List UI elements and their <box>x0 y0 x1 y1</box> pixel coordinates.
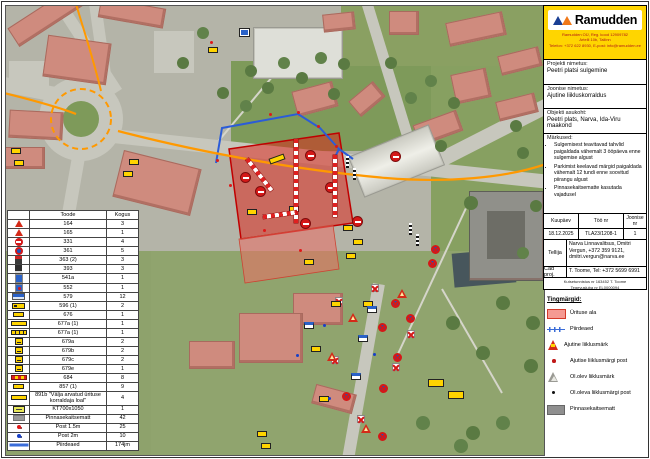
pole-sign <box>346 156 349 168</box>
ns-sign <box>391 299 400 308</box>
product-name: 679e <box>30 365 107 374</box>
pole-sign <box>409 223 412 235</box>
product-name: 677a (1) <box>30 329 107 338</box>
product-quantity: 4 <box>107 392 139 406</box>
rc-sign <box>391 152 400 161</box>
table-row: 363 (2)3 <box>8 256 139 265</box>
yp-sign <box>428 379 444 387</box>
circle-red-sign-icon <box>15 238 23 246</box>
legend-item-label: Pinnasekaitsematt <box>570 406 615 412</box>
product-name: 393 <box>30 265 107 274</box>
location-label: Objekti asukoht: <box>547 110 643 116</box>
product-quantity: 25 <box>107 423 139 432</box>
rx-sign <box>371 284 379 292</box>
rc-sign <box>241 173 250 182</box>
project-value: Peetri platsi sulgemine <box>547 68 643 74</box>
table-row: 677a (1)1 <box>8 329 139 338</box>
products-table: Toode Kogus 1643165133143615363 (2)33933… <box>7 210 139 451</box>
product-quantity: 9 <box>107 383 139 392</box>
ns-sign <box>406 314 415 323</box>
location-value: Peetri plats, Narva, Ida-Viru maakond <box>547 117 643 129</box>
product-quantity: 2 <box>107 347 139 356</box>
legend-item: Pinnasekaitsematt <box>547 404 647 414</box>
bs-sign <box>240 29 249 36</box>
product-name: 679a <box>30 338 107 347</box>
date-value: 18.12.2025 <box>544 229 579 240</box>
yp-sign <box>311 346 321 352</box>
product-name: 541a <box>30 274 107 284</box>
logo: Ramudden <box>548 10 642 30</box>
bar-sign <box>333 155 337 217</box>
legend-item: Ajutise liiklusmärgi post <box>547 356 647 366</box>
wt-sign <box>348 313 358 322</box>
yp-sq-sign-icon <box>15 338 23 345</box>
client-label: Tellija <box>544 240 567 266</box>
legend-item: Piirdeaed <box>547 324 647 334</box>
product-name: 331 <box>30 238 107 247</box>
product-quantity: 1 <box>107 365 139 374</box>
legend-item-label: Ajutise liiklusmärgi post <box>570 358 627 364</box>
product-column-header: Toode <box>30 211 107 220</box>
yp-sign <box>261 443 271 449</box>
yp-sign <box>353 239 363 245</box>
product-quantity: 1 <box>107 405 139 414</box>
rd-sign <box>317 125 320 128</box>
yp-sign <box>304 259 314 265</box>
ns-sign <box>342 392 351 401</box>
bar-sign <box>263 210 297 219</box>
stripe-sign-icon <box>11 375 27 380</box>
yp-sign <box>448 391 464 399</box>
ns-sign <box>378 323 387 332</box>
kt-sign-icon <box>13 406 25 413</box>
product-quantity: 42 <box>107 414 139 423</box>
table-row: 891b "Välja arvatud ürituse korraldaja l… <box>8 392 139 406</box>
rc-sign <box>306 151 315 160</box>
table-row: 3933 <box>8 265 139 274</box>
ns-sign <box>431 245 440 254</box>
sheet-label: Joonise nr <box>624 214 647 229</box>
table-row: Piirdeaed174jm <box>8 441 139 450</box>
bd-sign <box>373 353 376 356</box>
product-quantity: 3 <box>107 256 139 265</box>
table-header-row: Toode Kogus <box>8 211 139 220</box>
product-name: 552 <box>30 284 107 293</box>
table-row: 57912 <box>8 293 139 302</box>
table-row: 679a2 <box>8 338 139 347</box>
table-row: 6848 <box>8 374 139 383</box>
rect-blue-sign-icon <box>15 274 23 283</box>
product-quantity: 1 <box>107 284 139 293</box>
product-quantity: 12 <box>107 293 139 302</box>
table-row: 679e1 <box>8 365 139 374</box>
tri-sign-icon <box>15 229 23 236</box>
fence-sign-icon <box>10 444 28 446</box>
table-row: Pinnasekaitsematt42 <box>8 414 139 423</box>
logo-triangle-icon <box>562 16 572 25</box>
table-row: 5521 <box>8 284 139 293</box>
product-quantity: 2 <box>107 338 139 347</box>
sq-dark-sign-icon <box>15 265 22 273</box>
product-name: 679c <box>30 356 107 365</box>
meta-header-row: Kuupäev Töö nr Joonise nr <box>544 214 647 229</box>
yp-small-sign-icon <box>13 312 24 317</box>
legend-item: Ürituse ala <box>547 308 647 318</box>
client-value: Narva Linnavalitsus, Dmitri Vergun, +372… <box>567 240 646 266</box>
project-section: Projekti nimetus: Peetri platsi sulgemin… <box>543 59 647 85</box>
gray-sign-icon <box>13 415 25 421</box>
drawing-value: Ajutine liikluskorraldus <box>547 93 643 99</box>
pole-sign <box>353 168 356 180</box>
table-row: 3615 <box>8 247 139 256</box>
rc-sign <box>301 219 310 228</box>
meta-table: Kuupäev Töö nr Joonise nr 18.12.2025 TLA… <box>543 213 647 240</box>
yp-sign <box>208 47 218 53</box>
product-quantity: 4 <box>107 238 139 247</box>
product-quantity: 1 <box>107 329 139 338</box>
yp-sign <box>331 301 341 307</box>
symbols-legend-list: Ürituse alaPiirdeaedAjutine liiklusmärkA… <box>547 308 647 414</box>
symbols-legend-title: Tingmärgid: <box>547 297 647 303</box>
fence-icon <box>547 324 565 334</box>
note-item: Pinnasekaitsematte kasutada vajadusel <box>554 185 643 198</box>
note-item: Sulgemisest teavitavad tahvlid paigaldad… <box>554 142 643 162</box>
wt-sign <box>327 352 337 361</box>
wt-sign <box>397 289 407 298</box>
wt-sign <box>361 424 371 433</box>
table-row: Post 2m10 <box>8 432 139 441</box>
yp-sign <box>268 153 285 164</box>
bd-sign <box>296 354 299 357</box>
bw-sign <box>367 306 377 313</box>
product-name: 677a (1) <box>30 320 107 329</box>
fineprint-line: Tegevusluba nr EL0000094 <box>547 285 643 291</box>
fineprint-section: Kutsetunnistus nr 163452 T. Toome Tegevu… <box>543 277 647 290</box>
table-row: 677a (1)1 <box>8 320 139 329</box>
product-name: Post 1.5m <box>30 423 107 432</box>
notes-list: Sulgemisest teavitavad tahvlid paigaldad… <box>554 142 643 198</box>
product-name: KT700x1050 <box>30 405 107 414</box>
rd-sign <box>229 184 232 187</box>
drawing-section: Joonise nimetus: Ajutine liikluskorraldu… <box>543 84 647 109</box>
dot-black-icon <box>547 388 565 398</box>
yp-sign <box>247 209 257 215</box>
location-section: Objekti asukoht: Peetri plats, Narva, Id… <box>543 108 647 134</box>
title-block: Ramudden Ramudden OÜ, Reg. kood 12909782… <box>543 5 647 290</box>
post-red-sign-icon <box>17 425 21 429</box>
area-icon <box>547 308 565 318</box>
legend-item: Ol.olev liiklusmärk <box>547 372 647 382</box>
yp-sign <box>343 225 353 231</box>
ns-sign <box>428 259 437 268</box>
table-row: 679c2 <box>8 356 139 365</box>
product-quantity: 2 <box>107 302 139 311</box>
product-name: 165 <box>30 229 107 238</box>
yp-sign <box>123 171 133 177</box>
bd-sign <box>328 397 331 400</box>
product-quantity: 5 <box>107 247 139 256</box>
product-name: 579 <box>30 293 107 302</box>
circle-ns-sign-icon <box>15 247 23 255</box>
yp-sign <box>346 253 356 259</box>
dot-red-icon <box>547 356 565 366</box>
notes-section: Märkused: Sulgemisest teavitavad tahvlid… <box>543 133 647 214</box>
rd-sign <box>216 159 219 162</box>
mat-icon <box>547 404 565 414</box>
brand-name: Ramudden <box>575 13 637 27</box>
tri-sign-icon <box>15 220 23 227</box>
yp-long2-sign-icon <box>11 330 27 335</box>
legend-item: Ol.oleva liiklusmärgi post <box>547 388 647 398</box>
product-name: Pinnasekaitsematt <box>30 414 107 423</box>
legend-item-label: Ol.olev liiklusmärk <box>570 374 614 380</box>
product-quantity: 8 <box>107 374 139 383</box>
sheet-value: 1 <box>624 229 647 240</box>
yp-sign <box>14 160 24 166</box>
rd-sign <box>263 229 266 232</box>
plan-sheet: { "logo": { "brand": "Ramudden", "line1"… <box>0 0 650 459</box>
rx-sign <box>407 330 415 338</box>
product-name: 361 <box>30 247 107 256</box>
rect-blue-wide-sign-icon <box>12 293 25 300</box>
table-row: Post 1.5m25 <box>8 423 139 432</box>
yp-long-sign-icon <box>11 395 27 400</box>
product-quantity: 174jm <box>107 441 139 450</box>
table-row: 1651 <box>8 229 139 238</box>
ns-sign <box>378 432 387 441</box>
product-name: 857 (1) <box>30 383 107 392</box>
notes-label: Märkused: <box>547 135 643 141</box>
logo-box: Ramudden Ramudden OÜ, Reg. kood 12909782… <box>543 5 647 60</box>
rd-sign <box>335 145 338 148</box>
project-label: Projekti nimetus: <box>547 61 643 67</box>
yp-sq-sign-icon <box>15 347 23 354</box>
symbols-legend: Tingmärgid: Ürituse alaPiirdeaedAjutine … <box>547 297 647 420</box>
post-blue-sign-icon <box>17 434 21 438</box>
client-section: Tellija Narva Linnavalitsus, Dmitri Verg… <box>543 239 647 267</box>
work-number-value: TLA23/1208-1 <box>579 229 624 240</box>
bw-sign <box>351 373 361 380</box>
product-name: 596 (1) <box>30 302 107 311</box>
product-quantity: 2 <box>107 356 139 365</box>
legend-item: Ajutine liiklusmärk <box>547 340 647 350</box>
legend-item-label: Ajutine liiklusmärk <box>564 342 608 348</box>
pole-sign <box>416 234 419 246</box>
tri-red-icon <box>547 340 559 350</box>
rc-sign <box>353 217 362 226</box>
company-info-line: Telefon: +372 622 8930, E-post: info@ram… <box>544 43 646 48</box>
yp-sign <box>129 159 139 165</box>
yp-sign <box>11 148 21 154</box>
product-quantity: 1 <box>107 229 139 238</box>
tri-gray-icon <box>547 372 565 382</box>
product-name: Piirdeaed <box>30 441 107 450</box>
product-quantity: 3 <box>107 265 139 274</box>
sq-blue-red-sign-icon <box>15 284 23 292</box>
legend-item-label: Piirdeaed <box>570 326 593 332</box>
table-row: 679b2 <box>8 347 139 356</box>
rd-sign <box>210 41 213 44</box>
product-name: 676 <box>30 311 107 320</box>
date-label: Kuupäev <box>544 214 579 229</box>
note-item: Parkimist keelavad märgid paigaldada väh… <box>554 164 643 184</box>
meta-value-row: 18.12.2025 TLA23/1208-1 1 <box>544 229 647 240</box>
product-name: 679b <box>30 347 107 356</box>
work-number-label: Töö nr <box>579 214 624 229</box>
table-row: 3314 <box>8 238 139 247</box>
sq-dark-red-sign-icon <box>15 256 22 264</box>
yp-sq-sign-icon <box>15 356 23 363</box>
ns-sign <box>393 353 402 362</box>
bw-sign <box>304 322 314 329</box>
table-row: 596 (1)2 <box>8 302 139 311</box>
rd-sign <box>269 113 272 116</box>
rd-sign <box>299 249 302 252</box>
table-row: 541a1 <box>8 274 139 284</box>
yp-sq-sign-icon <box>15 365 23 372</box>
yp-sign <box>257 431 267 437</box>
yp-long-sign-icon <box>11 321 27 326</box>
yp-arrow-sign-icon <box>12 303 25 309</box>
legend-item-label: Ol.oleva liiklusmärgi post <box>570 390 631 396</box>
product-quantity: 1 <box>107 311 139 320</box>
table-row: KT700x10501 <box>8 405 139 414</box>
bd-sign <box>323 324 326 327</box>
table-row: 1643 <box>8 220 139 229</box>
icon-column-header <box>8 211 30 220</box>
rd-sign <box>297 111 300 114</box>
cad-label: Cad proj. <box>544 267 567 277</box>
product-name: 363 (2) <box>30 256 107 265</box>
rc-sign <box>256 187 265 196</box>
table-row: 857 (1)9 <box>8 383 139 392</box>
rx-sign <box>357 415 365 423</box>
ns-sign <box>379 384 388 393</box>
product-quantity: 1 <box>107 274 139 284</box>
bw-sign <box>358 335 368 342</box>
product-name: 684 <box>30 374 107 383</box>
drawing-label: Joonise nimetus: <box>547 86 643 92</box>
table-row: 6761 <box>8 311 139 320</box>
quantity-column-header: Kogus <box>107 211 139 220</box>
product-quantity: 10 <box>107 432 139 441</box>
product-name: 164 <box>30 220 107 229</box>
product-quantity: 3 <box>107 220 139 229</box>
rx-sign <box>392 363 400 371</box>
legend-item-label: Ürituse ala <box>570 310 596 316</box>
product-name: Post 2m <box>30 432 107 441</box>
yp-small-sign-icon <box>13 384 24 389</box>
product-quantity: 1 <box>107 320 139 329</box>
cad-value: T. Toome, Tel: +372 5699 6991 <box>567 267 646 277</box>
product-name: 891b "Välja arvatud ürituse korraldaja l… <box>30 392 107 406</box>
